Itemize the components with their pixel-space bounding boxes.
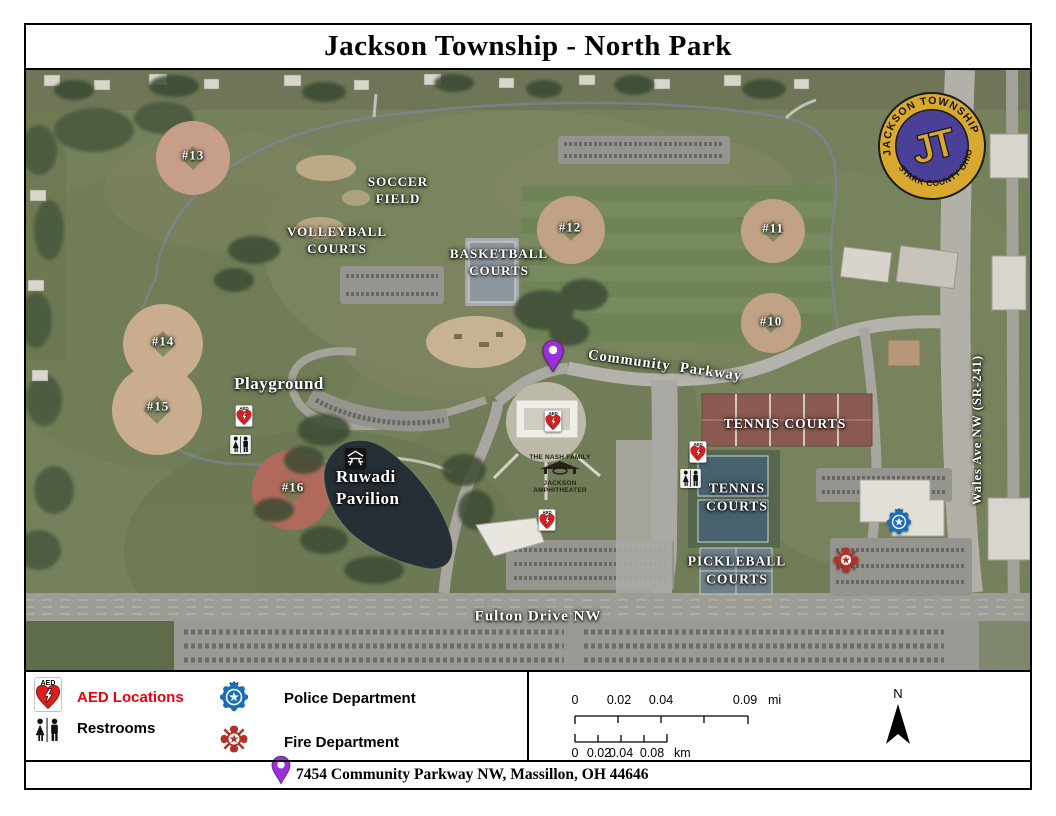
location-pin-icon xyxy=(540,339,566,373)
aed-icon xyxy=(538,509,556,531)
svg-text:0.04: 0.04 xyxy=(649,693,673,707)
legend-divider xyxy=(527,672,529,762)
picnic-table-icon xyxy=(345,448,366,469)
restroom-icon xyxy=(230,435,251,454)
label-soccer-field: SOCCER FIELD xyxy=(368,174,428,208)
aed-icon xyxy=(689,441,707,463)
address-bar: 7454 Community Parkway NW, Massillon, OH… xyxy=(24,762,1032,790)
label-tennis-courts-lower: TENNIS COURTS xyxy=(706,479,768,514)
pavilion-roof-glyph xyxy=(538,460,582,475)
amphitheater-sign: THE NASH FAMILY JACKSON AMPHITHEATER xyxy=(518,454,602,495)
label-fulton-drive: Fulton Drive NW xyxy=(475,607,602,627)
label-ballfield-13: #13 xyxy=(182,148,205,165)
park-address: 7454 Community Parkway NW, Massillon, OH… xyxy=(296,766,649,784)
fire-badge-icon xyxy=(832,546,860,574)
scale-bar: 0 0.02 0.04 0.09 mi 0 0.02 0.04 0.08 km xyxy=(564,690,814,762)
label-pickleball-courts: PICKLEBALL COURTS xyxy=(688,552,787,587)
amphitheater-sign-line2: JACKSON xyxy=(518,480,602,487)
label-ruwadi-pavilion: Ruwadi Pavilion xyxy=(336,466,400,510)
police-badge-icon xyxy=(887,507,911,535)
restroom-icon xyxy=(680,469,701,488)
legend-fire-label: Fire Department xyxy=(284,734,399,751)
svg-text:N: N xyxy=(893,686,902,701)
legend-aed-label: AED Locations xyxy=(77,689,184,706)
title-bar: Jackson Township - North Park xyxy=(24,23,1032,70)
police-legend-icon xyxy=(220,680,248,712)
label-basketball-courts: BASKETBALL COURTS xyxy=(450,246,548,280)
label-ballfield-12: #12 xyxy=(559,220,582,237)
aerial-map: JACKSON TOWNSHIP STARK COUNTY OHIO JT #1… xyxy=(24,70,1032,672)
restroom-legend-icon xyxy=(32,716,62,744)
fire-legend-icon xyxy=(219,724,249,754)
svg-text:0: 0 xyxy=(572,746,579,760)
svg-text:0.04: 0.04 xyxy=(609,746,633,760)
label-playground: Playground xyxy=(234,373,324,395)
label-ballfield-14: #14 xyxy=(152,334,175,351)
label-ballfield-10: #10 xyxy=(760,314,783,331)
svg-text:0.09: 0.09 xyxy=(733,693,757,707)
label-tennis-courts-upper: TENNIS COURTS xyxy=(724,415,846,433)
svg-text:0.02: 0.02 xyxy=(607,693,631,707)
legend-address-divider xyxy=(24,760,1032,762)
aed-legend-icon xyxy=(34,677,62,712)
label-ballfield-11: #11 xyxy=(762,221,784,238)
svg-text:km: km xyxy=(674,746,691,760)
svg-text:0: 0 xyxy=(572,693,579,707)
svg-text:mi: mi xyxy=(768,693,781,707)
svg-text:0.08: 0.08 xyxy=(640,746,664,760)
page-title: Jackson Township - North Park xyxy=(324,30,732,63)
aed-icon xyxy=(544,410,562,432)
label-ballfield-15: #15 xyxy=(147,399,170,416)
aed-icon xyxy=(235,405,253,427)
svg-text:0.02: 0.02 xyxy=(587,746,611,760)
map-legend-divider xyxy=(24,670,1032,672)
title-map-divider xyxy=(24,68,1032,70)
park-map-page: Jackson Township - North Park xyxy=(0,0,1056,816)
amphitheater-sign-line3: AMPHITHEATER xyxy=(518,487,602,494)
label-volleyball-courts: VOLLEYBALL COURTS xyxy=(287,224,387,258)
north-arrow-icon: N xyxy=(876,684,920,750)
label-ballfield-16: #16 xyxy=(282,480,305,497)
label-wales-ave: Wales Ave NW (SR-241) xyxy=(969,355,985,505)
legend-panel: AED Locations Restrooms Police Departmen… xyxy=(24,672,1032,762)
legend-police-label: Police Department xyxy=(284,690,416,707)
legend-restrooms-label: Restrooms xyxy=(77,720,155,737)
